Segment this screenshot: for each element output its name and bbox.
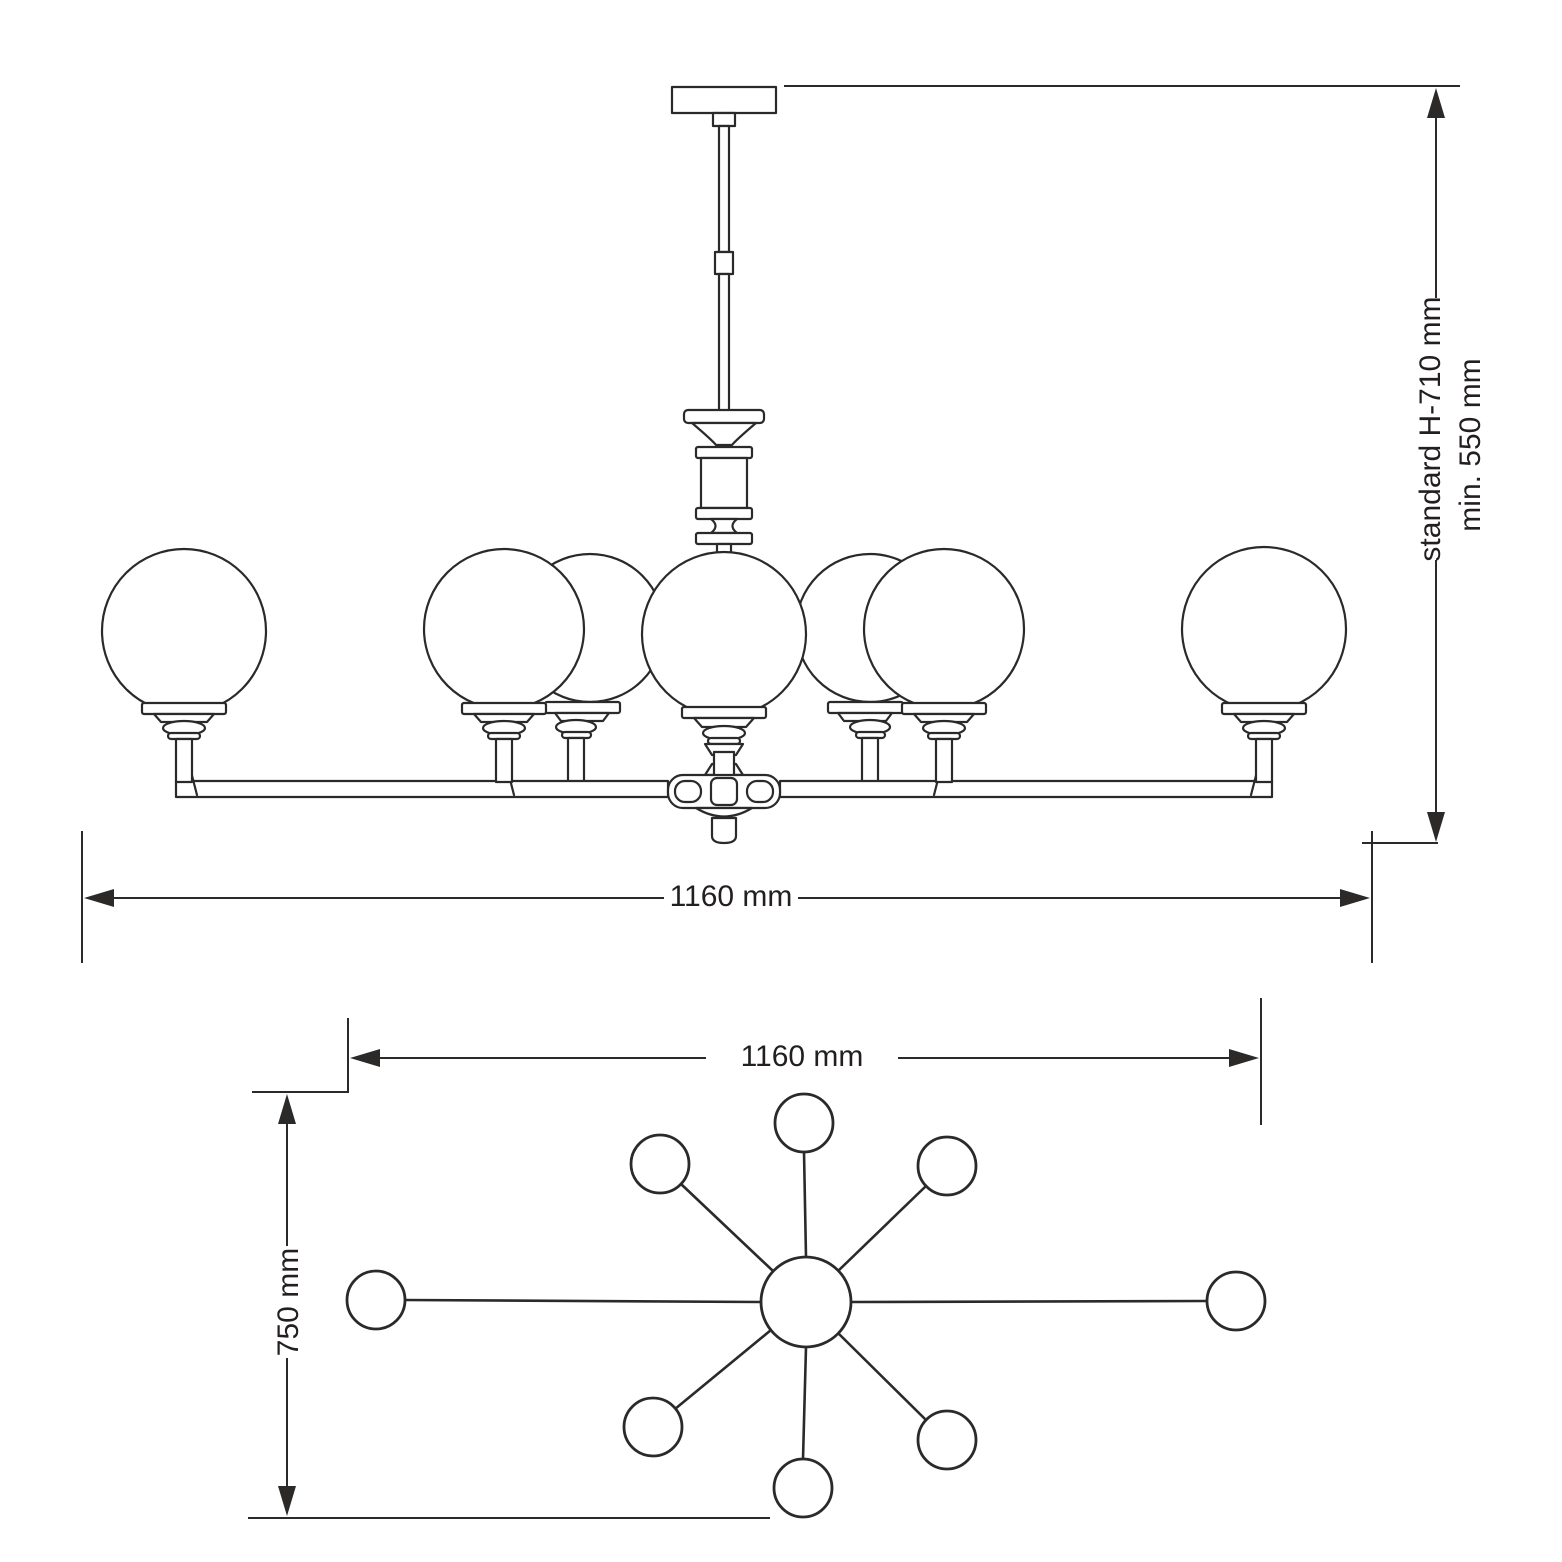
- ceiling-canopy: [672, 87, 776, 113]
- elevation-view: standard H-710 mm min. 550 mm 1160 mm: [82, 86, 1487, 963]
- stem-collar-1: [696, 447, 752, 458]
- hub-center-block: [711, 778, 737, 805]
- rod-lower: [719, 274, 729, 412]
- fitter-left-rear: [545, 702, 620, 738]
- arrowhead-down: [278, 1486, 296, 1516]
- arrowhead-left: [84, 889, 114, 907]
- arrowhead-left: [350, 1049, 380, 1067]
- plan-arm-nw: [681, 1184, 773, 1271]
- center-fitter-plate: [682, 707, 766, 718]
- fitter-left-front: [462, 703, 546, 782]
- plan-depth-label: 750 mm: [272, 1248, 305, 1356]
- plan-width-label: 1160 mm: [741, 1040, 864, 1073]
- plan-globe-e: [1207, 1272, 1265, 1330]
- plan-arm-w: [405, 1300, 761, 1302]
- plan-depth-dimension: 750 mm: [248, 1092, 770, 1518]
- globe-right-front: [864, 549, 1024, 709]
- stem-bowl: [692, 423, 756, 445]
- plan-arm-s: [803, 1347, 806, 1459]
- plan-arm-se: [838, 1333, 926, 1420]
- plan-globe-nw: [631, 1135, 689, 1193]
- hub-socket-right: [747, 781, 773, 802]
- stem-ring: [696, 508, 752, 519]
- plan-arm-ne: [838, 1186, 926, 1271]
- center-hub-assembly: [668, 707, 780, 843]
- ceiling-mount: [672, 87, 776, 412]
- arrowhead-right: [1340, 889, 1370, 907]
- fitter-far-right: [1222, 703, 1306, 782]
- plan-globe-n: [775, 1094, 833, 1152]
- rod-coupler: [715, 252, 733, 274]
- plan-arm-e: [851, 1301, 1207, 1302]
- arrowhead-right: [1229, 1049, 1259, 1067]
- plan-globe-s: [774, 1459, 832, 1517]
- chandelier-technical-drawing: standard H-710 mm min. 550 mm 1160 mm: [0, 0, 1562, 1562]
- fitter-far-left: [142, 703, 226, 782]
- drawing-sheet: standard H-710 mm min. 550 mm 1160 mm: [0, 0, 1562, 1562]
- globe-left-front: [424, 549, 584, 709]
- globe-center: [642, 552, 806, 716]
- elevation-width-label: 1160 mm: [670, 880, 793, 913]
- plan-hub: [761, 1257, 851, 1347]
- fitter-right-front: [902, 703, 986, 782]
- arm-left: [176, 781, 668, 797]
- plan-globe-sw: [624, 1398, 682, 1456]
- stem-top-plate: [684, 410, 764, 423]
- center-post: [714, 752, 734, 777]
- rod-upper: [719, 126, 729, 252]
- globe-far-left: [102, 549, 266, 713]
- plan-globe-w: [347, 1271, 405, 1329]
- height-min-label: min. 550 mm: [1454, 358, 1487, 531]
- arrowhead-up: [1427, 88, 1445, 118]
- height-standard-label: standard H-710 mm: [1414, 296, 1447, 561]
- plan-view: 1160 mm 750 mm: [248, 998, 1265, 1518]
- arm-right: [780, 781, 1272, 797]
- hub-dome: [696, 808, 752, 817]
- stem-waist: [711, 519, 737, 533]
- post-left-rear: [568, 738, 584, 782]
- arrowhead-up: [278, 1094, 296, 1124]
- canopy-connector: [713, 113, 735, 126]
- central-stem: [684, 410, 764, 558]
- plan-globe-ne: [918, 1137, 976, 1195]
- stem-cylinder: [701, 458, 747, 508]
- elevation-width-dimension: 1160 mm: [82, 831, 1372, 963]
- arrowhead-down: [1427, 812, 1445, 842]
- plan-globe-se: [918, 1411, 976, 1469]
- plan-arm-sw: [675, 1330, 771, 1409]
- globe-far-right: [1182, 547, 1346, 711]
- plan-arm-n: [804, 1152, 806, 1257]
- finial: [712, 818, 736, 843]
- hub-socket-left: [675, 781, 701, 802]
- stem-collar-2: [696, 533, 752, 544]
- post-right-rear: [862, 738, 878, 782]
- fitter-right-rear: [828, 702, 903, 738]
